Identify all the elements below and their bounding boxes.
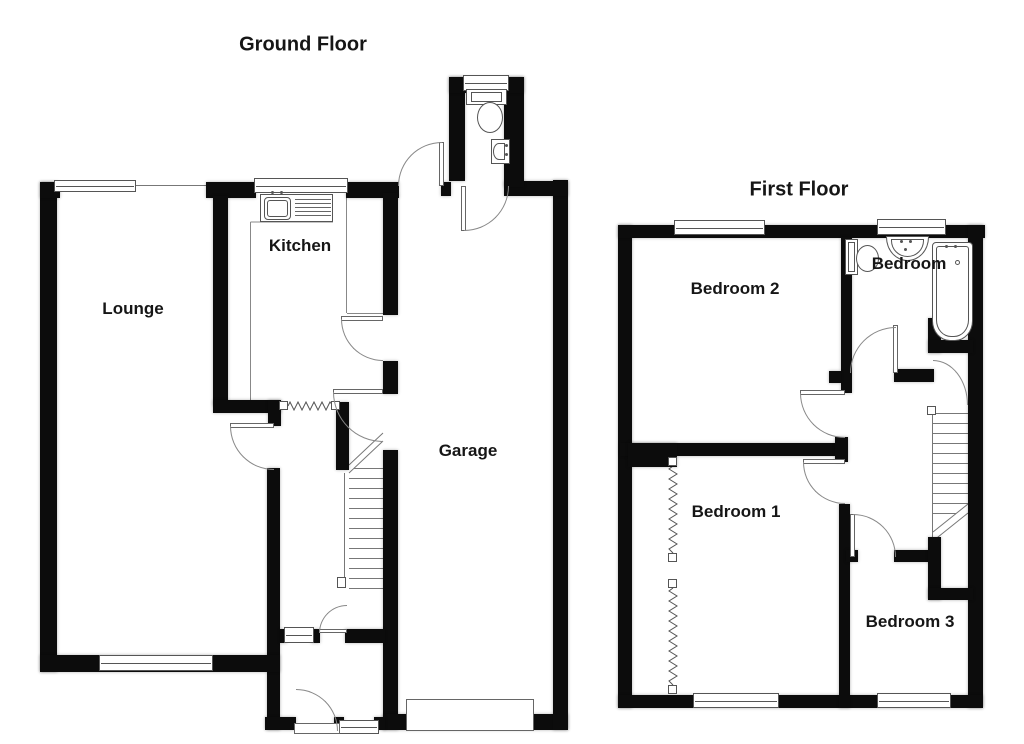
first-floor-title: First Floor (750, 179, 849, 202)
wall (894, 369, 934, 382)
room-label-bedroom3: Bedroom 3 (866, 612, 955, 632)
stair-newel-post (927, 406, 936, 415)
tap-icon (909, 240, 912, 243)
wall (839, 504, 850, 708)
window-icon (877, 219, 946, 235)
room-label-bathroom: Bedroom (872, 254, 947, 274)
window-icon (674, 220, 765, 235)
tap-icon (900, 240, 903, 243)
wall (928, 340, 973, 353)
tap-icon (945, 245, 948, 248)
tap-icon (954, 245, 957, 248)
wall (928, 588, 973, 600)
floorplan-canvas: Ground Floor Lounge Kitchen Garage (0, 0, 1024, 744)
wall-break-icon (668, 685, 677, 694)
door-swing-icon (800, 393, 845, 438)
door-swing-icon (803, 462, 845, 504)
room-label-bedroom2: Bedroom 2 (691, 279, 780, 299)
wall (829, 371, 841, 383)
room-label-bedroom1: Bedroom 1 (692, 502, 781, 522)
toilet-icon (848, 242, 855, 272)
overflow-icon (955, 260, 960, 265)
door-swing-icon (933, 360, 968, 405)
door-swing-icon (850, 327, 896, 373)
wall-break-icon (668, 457, 677, 466)
door-swing-icon (853, 514, 896, 557)
first-floor-plan: First Floor Bedroom 2 Bedroom Bedroom 1 … (0, 0, 1024, 744)
wall-break-icon (668, 579, 677, 588)
wall (894, 550, 932, 562)
tap-icon (904, 248, 907, 251)
window-icon (693, 693, 779, 708)
window-icon (877, 693, 951, 708)
wall-break-icon (668, 553, 677, 562)
